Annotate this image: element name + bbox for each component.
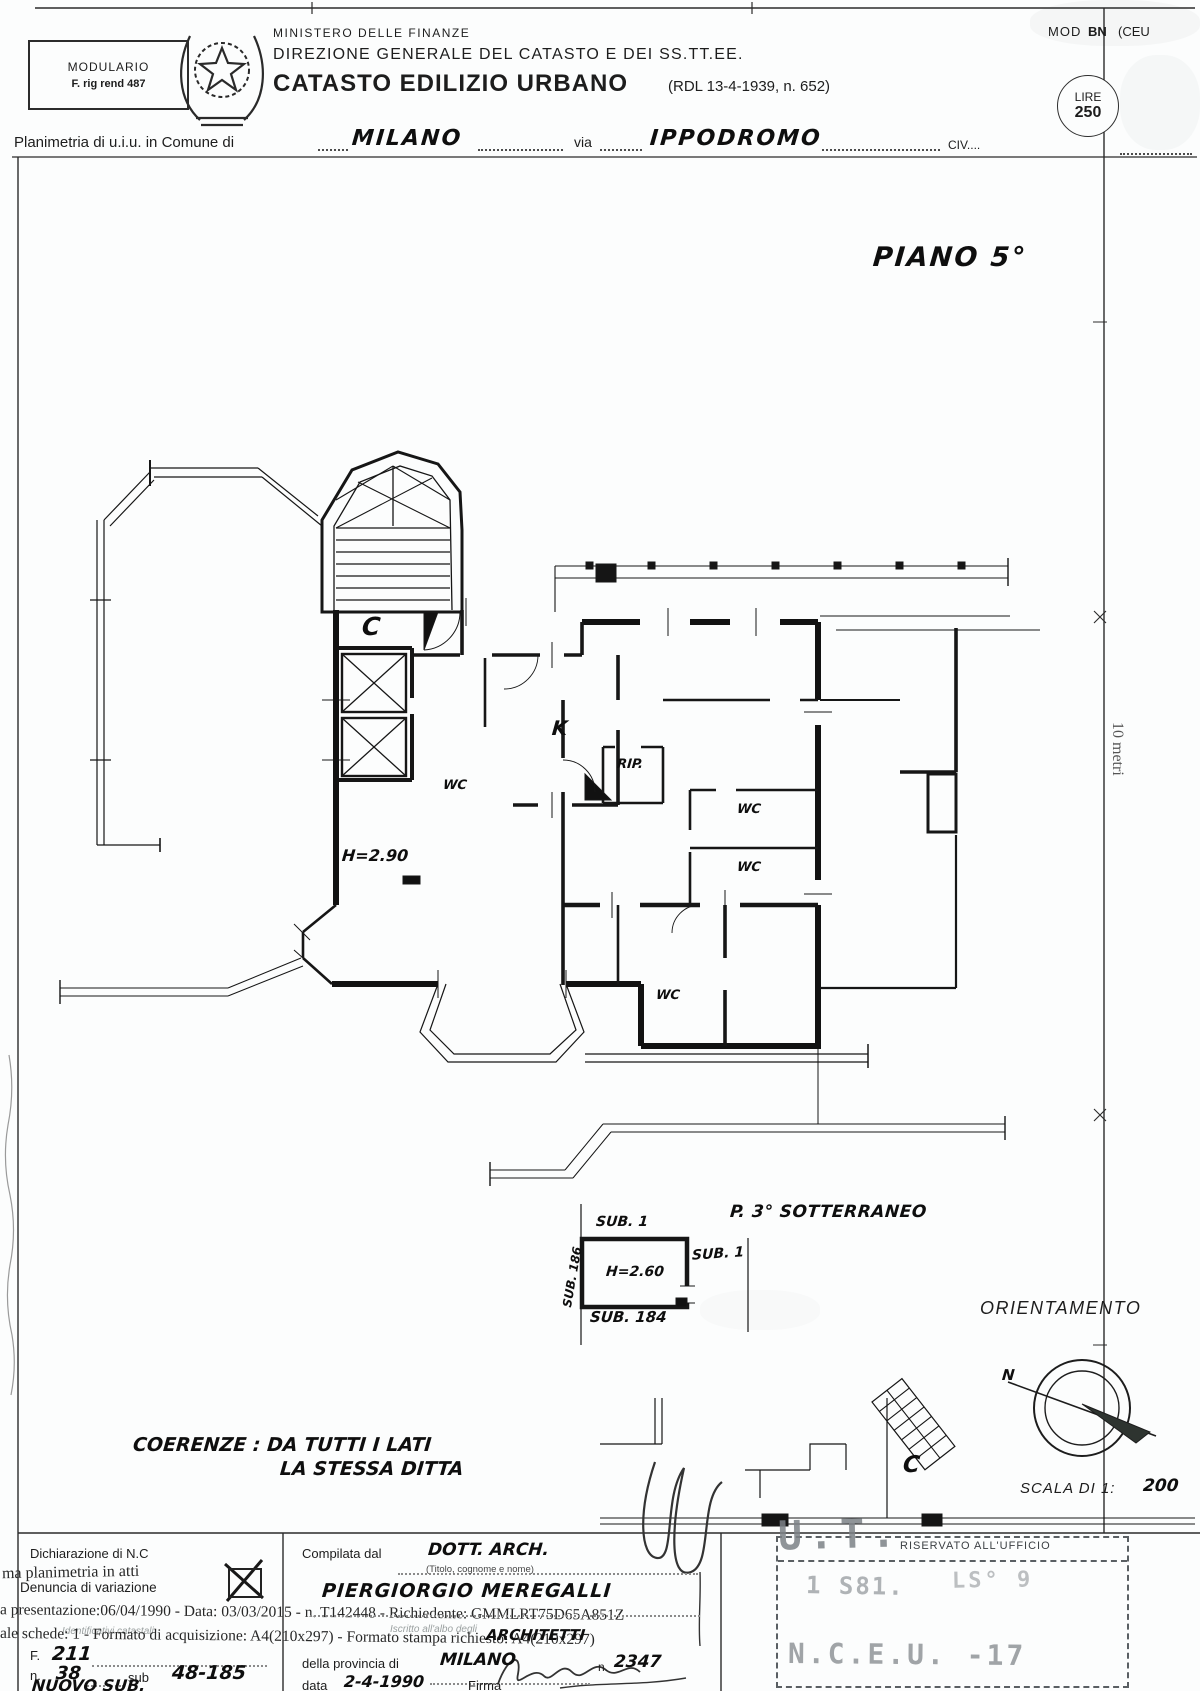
storage-label: RIP. [616, 757, 643, 772]
compass-rose [1008, 1360, 1156, 1456]
office-nceu-stamp: N.C.E.U. -17 [788, 1637, 1027, 1672]
basement-stair-c-label: C [902, 1452, 921, 1478]
mod-label: MOD [1048, 24, 1081, 39]
balcony-parapet [555, 558, 1008, 612]
page-title: CATASTO EDILIZIO URBANO [273, 70, 628, 98]
dimension-ticks [322, 598, 832, 998]
albo-value: ARCHITETTI [485, 1626, 586, 1644]
north-label: N [1001, 1366, 1015, 1384]
mod-paren: (CEU [1118, 24, 1150, 39]
basement-height-label: H=2.60 [605, 1264, 664, 1280]
scale-bar-label: 10 metri [1108, 722, 1126, 776]
compiler-name: PIERGIORGIO MEREGALLI [321, 1580, 612, 1602]
modulario-line2: F. rig rend 487 [72, 78, 146, 90]
office-box-divider [778, 1560, 1127, 1562]
scale-note-value: 200 [1142, 1476, 1179, 1496]
state-emblem [181, 36, 263, 125]
office-header: RISERVATO ALL'UFFICIO [900, 1540, 1051, 1552]
orientation-title: ORIENTAMENTO [980, 1298, 1141, 1319]
via-value: IPPODROMO [649, 126, 823, 151]
titolo-hint: (Titolo, cognome e nome) [426, 1564, 534, 1575]
wc-label-2: WC [736, 802, 761, 817]
scale-note-label: SCALA DI 1: [1020, 1480, 1115, 1497]
albo-n-value: 2347 [613, 1652, 662, 1672]
ceiling-height-label: H=2.90 [341, 846, 409, 865]
comune-value: MILANO [351, 126, 463, 151]
data-value: 2-4-1990 [343, 1672, 425, 1691]
lire-value: 250 [1075, 104, 1102, 122]
basement-title: P. 3° SOTTERRANEO [729, 1202, 927, 1222]
data-label: data [302, 1678, 327, 1691]
lire-label: LIRE [1075, 90, 1102, 104]
left-wing-lines [90, 460, 322, 852]
dotted-leader [310, 1600, 700, 1617]
mod-code: BN [1088, 24, 1107, 39]
floor-label: PIANO 5° [872, 242, 1029, 273]
site-boundary-lines [60, 958, 1005, 1186]
coerenze-line1: COERENZE : DA TUTTI I LATI [132, 1434, 432, 1456]
ministry-sub: DIREZIONE GENERALE DEL CATASTO E DEI SS.… [273, 46, 744, 64]
via-label: via [574, 134, 592, 150]
provincia-value: MILANO [439, 1650, 517, 1670]
foglio-label: F. [30, 1648, 40, 1663]
modulario-box: MODULARIO F. rig rend 487 [28, 40, 189, 110]
denuncia-label: Denuncia di variazione [20, 1580, 157, 1595]
right-wing-walls [820, 616, 1040, 988]
dotted-leader [478, 134, 563, 151]
compilata-label: Compilata dal [302, 1546, 382, 1561]
dotted-leader [822, 134, 940, 151]
stair-tower [322, 452, 462, 612]
sub-value: 48-185 [171, 1662, 247, 1684]
sub-bottom-label: SUB. 184 [589, 1308, 667, 1326]
planimetria-label: Planimetria di u.i.u. in Comune di [14, 134, 234, 151]
dotted-leader [600, 134, 642, 151]
bottom-plan-fragment [600, 1379, 1195, 1526]
wc-label-4: WC [655, 988, 680, 1003]
lire-stamp: LIRE 250 [1057, 75, 1119, 137]
sub-top-label: SUB. 1 [595, 1214, 648, 1230]
firma-label: Firma [468, 1678, 501, 1691]
dotted-leader [168, 1686, 268, 1691]
wc-label-1: WC [442, 778, 467, 793]
ministry-top: MINISTERO DELLE FINANZE [273, 26, 470, 40]
office-ut-stamp: U.T. [777, 1510, 902, 1559]
albo-n-label: n. [598, 1660, 608, 1674]
interior-walls [412, 610, 818, 1046]
wc-label-3: WC [736, 860, 761, 875]
variation-checkbox[interactable] [228, 1568, 262, 1598]
compilata-value: DOTT. ARCH. [427, 1540, 550, 1560]
coerenze-line2: LA STESSA DITTA [279, 1458, 464, 1480]
dotted-leader [318, 134, 348, 151]
modulario-line1: MODULARIO [68, 60, 150, 74]
dotted-leader [1120, 138, 1192, 155]
civ-label: CIV.... [948, 138, 980, 152]
dotted-leader [430, 1668, 590, 1685]
kitchen-label: K [551, 716, 569, 740]
office-date-stamp: 1 S81. [806, 1571, 905, 1601]
dichiarazione-label: Dichiarazione di N.C [30, 1546, 149, 1561]
cadastral-sheet: MODULARIO F. rig rend 487 MINISTERO DELL… [0, 0, 1200, 1691]
page-title-ref: (RDL 13-4-1939, n. 652) [668, 78, 830, 95]
nuovo-sub-label: NUOVO SUB. [31, 1676, 146, 1691]
office-date-stamp-2: LS° 9 [952, 1567, 1034, 1593]
stair-c-label: C [361, 612, 382, 641]
provincia-label: della provincia di [302, 1656, 399, 1671]
foglio-value: 211 [51, 1643, 93, 1665]
chamfer-windows [294, 905, 336, 984]
